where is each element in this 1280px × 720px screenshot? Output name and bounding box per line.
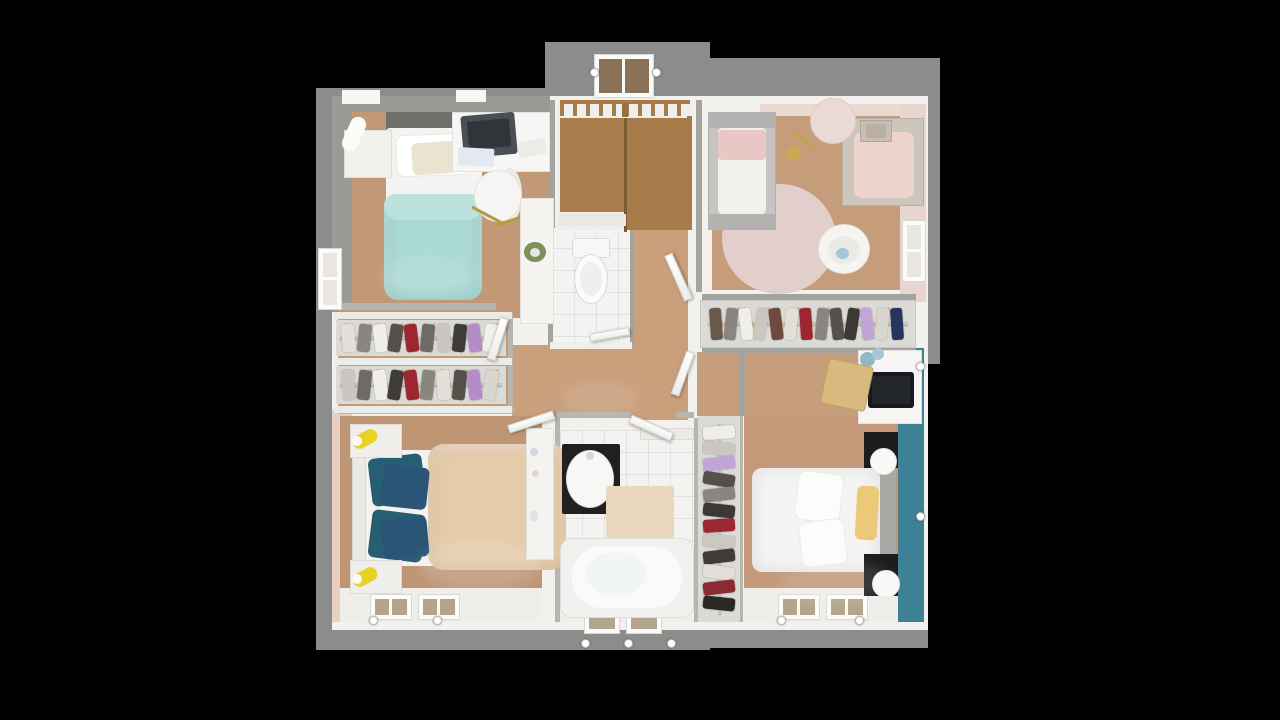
dressing-rack-garment [723,307,738,340]
closet-shelf-top [334,312,512,319]
window-bedroom1-top-b [456,90,486,102]
wc-shelf [558,214,626,226]
nursery-crib-blanket-pink [718,130,766,160]
vertical-rack-garment [703,425,736,440]
marker-dot-4 [624,639,633,648]
marker-dot-10 [652,68,661,77]
closet-rack-lower-garment [482,369,499,401]
closet-rack-upper-garment [341,324,356,353]
bedroom3-rattan-chair [820,358,875,413]
master-lamp-top-cap [352,436,362,446]
bedroom1-chair-seat [474,170,522,222]
closet-rack-lower-garment [467,369,483,400]
dressing-rack-garment [784,307,799,340]
vertical-rack-garment [702,579,735,595]
wallcore-bedroom1-bottom [338,303,496,310]
dressing-rack-garment [738,307,754,340]
window-master-2-mullion [437,597,440,617]
bedroom3-pillow-1 [793,469,845,524]
closet-rack-upper-garment [387,323,404,353]
stairs-newel [622,103,628,117]
bedroom1-papers [458,147,495,167]
wallcore-bedroom3-left-upper [739,352,745,416]
stairs-winders [560,118,626,212]
bedroom3-cushion-yellow [855,485,880,540]
dressing-rack-garment [814,307,829,340]
dressing-rack-garment [874,307,889,340]
vertical-rack-garment [702,595,735,611]
closet-rack-lower-garment [356,369,372,400]
closet-rack-upper-garment [372,323,388,352]
dressing-rack [704,304,912,344]
master-lamp-bottom-cap [352,574,362,584]
sheen-bedroom1 [380,255,470,295]
nursery-floorlamp-shade [810,98,856,144]
window-nursery-right [902,220,926,282]
marker-dot-11 [590,68,599,77]
closet-rack-lower-garment [419,369,435,400]
floor-plan [0,0,1280,720]
closet-rack-lower-garment [403,369,419,400]
master-pillow-navy-2 [380,516,429,560]
window-nursery-right-mullion [905,249,923,252]
window-bedroom3-1-mullion [797,597,800,617]
nursery-changing-box-inner [866,124,886,138]
closet-rack-upper-garment [436,324,451,353]
closet-rack-lower-garment [436,370,451,401]
closet-shelf-bottom [334,406,512,413]
sheen-bedroom3 [780,560,890,604]
vertical-rack-garment [702,486,735,502]
closet-rack-lower-garment [387,369,404,401]
vertical-rack-garment [702,533,735,549]
bedroom3-laptop-keys [872,376,910,404]
bedroom1-plant-pot [530,248,540,257]
vertical-rack-garment [702,548,735,564]
window-stairs-top [594,54,654,98]
bath-faucet [586,452,594,460]
closet-rack-upper-garment [356,323,372,352]
sheen-hallway [560,380,640,416]
bedroom1-duvet-fold [384,194,482,220]
window-master-1-mullion [389,597,392,617]
wallcore-wc-bottom [550,342,632,349]
bedroom3-vase-2 [872,348,884,360]
marker-dot-9 [916,512,925,521]
dressing-rack-garment [829,307,845,340]
closet-rack-upper-garment [420,323,436,352]
closet-rack-lower-garment [451,369,467,400]
dressing-rack-garment [768,307,784,340]
marker-dot-8 [916,362,925,371]
marker-dot-5 [667,639,676,648]
dressing-rack-garment [799,308,813,341]
vertical-rack-garment [702,563,736,580]
master-pillow-navy-1 [380,464,430,511]
vertical-rack-garment [703,518,736,533]
window-bedroom1-left-mullion [321,277,339,280]
closet-rack-upper-garment [451,323,467,352]
marker-dot-7 [855,616,864,625]
vertical-rack-garment [702,502,735,518]
window-bedroom1-left [318,248,342,310]
closet-rack-lower-garment [341,370,356,401]
bath-tub-sheen [586,552,646,596]
bath-mat-beige [606,486,674,538]
closet-rack-upper [336,320,506,356]
stairs-flight [626,118,688,230]
dressing-rack-garment [843,307,860,340]
master-cabinet [526,428,554,560]
wc-toilet-seat [580,262,602,296]
window-bedroom1-top-a [342,90,380,104]
vertical-rack [700,420,738,618]
nursery-crib-slats-top [708,112,776,128]
wallcore-bath-top-right [676,412,694,418]
marker-dot-1 [369,616,378,625]
dressing-rack-garment [859,307,875,340]
dressing-rack-garment [890,308,904,341]
master-cabinet-bottle-1 [530,448,538,456]
marker-dot-3 [581,639,590,648]
nursery-armchair-toy [836,248,849,259]
closet-shelf-mid [334,358,512,365]
nursery-crib-slats-bottom [708,214,776,230]
dressing-rack-garment [709,308,723,341]
sheen-master [420,540,540,590]
closet-rack-lower-garment [372,369,388,400]
master-headboard [352,446,366,570]
closet-rack-lower [336,366,506,404]
master-cabinet-bottle-3 [530,510,538,522]
bedroom1-laptop-screen [467,118,511,150]
wallcore-stairs-nursery [696,100,702,292]
vertical-rack-garment [702,470,736,487]
marker-dot-6 [777,616,786,625]
stairs-railing-right [687,116,692,230]
closet-rack-upper-garment [467,323,483,352]
nursery-floorlamp-base [786,146,801,160]
closet-rack-upper-garment [404,323,420,352]
vertical-rack-garment [702,455,735,471]
master-cabinet-bottle-2 [532,470,539,477]
bedroom3-lamp-sphere-top [870,448,897,475]
marker-dot-2 [433,616,442,625]
window-stairs-top-mullion [622,57,625,95]
vertical-rack-garment [702,440,735,456]
